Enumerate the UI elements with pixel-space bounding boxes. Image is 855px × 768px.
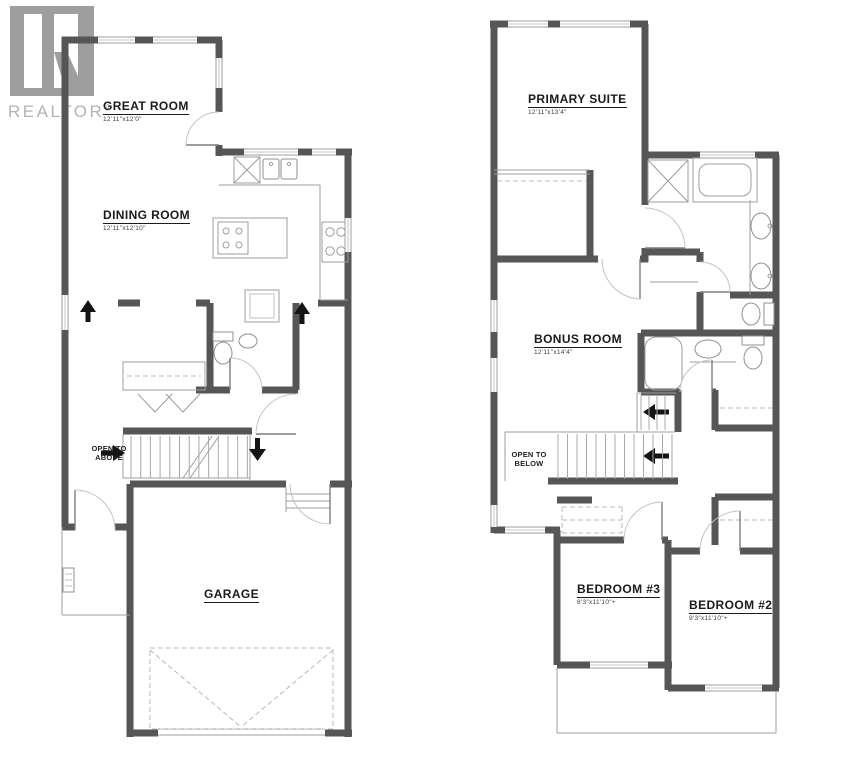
burner-icon xyxy=(223,228,229,234)
floorplan-page: REALTOR® xyxy=(0,0,855,768)
burner-icon xyxy=(337,247,345,255)
tub-surround xyxy=(693,158,757,202)
open-to-below-label: OPEN TO BELOW xyxy=(504,450,554,468)
burner-icon xyxy=(223,242,229,248)
dining-room-label: DINING ROOM 12'11"x12'10" xyxy=(103,206,190,232)
toilet-tank xyxy=(213,332,233,341)
bedroom-2-label: BEDROOM #2 9'3"x11'10"+ xyxy=(689,596,772,622)
upper-floor-plan xyxy=(490,24,779,733)
burner-icon xyxy=(337,228,345,236)
burner-icon xyxy=(236,228,242,234)
main-floor-plan xyxy=(62,37,352,737)
burner-icon xyxy=(236,242,242,248)
ensuite-tub xyxy=(699,164,751,196)
stove xyxy=(322,222,348,262)
burner-icon xyxy=(326,247,334,255)
ensuite-fixtures xyxy=(648,158,774,325)
powder-sink xyxy=(239,334,257,348)
bath-tub xyxy=(645,337,682,390)
cooktop xyxy=(218,222,248,254)
entry-arrow-icons xyxy=(80,300,310,461)
primary-suite-label: PRIMARY SUITE 12'11"x13'4" xyxy=(528,90,627,116)
toilet-tank xyxy=(764,303,774,325)
great-room-label: GREAT ROOM 12'11"x12'0" xyxy=(103,97,189,123)
bedroom-3-label: BEDROOM #3 8'3"x11'10"+ xyxy=(577,580,660,606)
bonus-room-label: BONUS ROOM 12'11"x14'4" xyxy=(534,330,622,356)
garage-door-swing-dashed xyxy=(150,648,333,729)
main-bath-fixtures xyxy=(645,336,764,390)
garage-label: GARAGE xyxy=(204,585,259,603)
kitchen-island xyxy=(213,218,287,258)
kitchen-fixtures xyxy=(213,157,348,322)
refrigerator-inner xyxy=(250,294,274,318)
burner-icon xyxy=(326,228,334,236)
toilet-bowl xyxy=(744,347,762,369)
powder-room-fixtures xyxy=(213,332,257,364)
bath-sink xyxy=(695,340,721,358)
toilet-bowl xyxy=(742,303,760,325)
main-floor-walls xyxy=(62,37,352,737)
shower-x xyxy=(648,160,688,202)
coat-hooks xyxy=(138,394,200,412)
dishwasher-x xyxy=(234,157,260,183)
stair-treads xyxy=(131,395,672,479)
open-to-above-label: OPEN TO ABOVE xyxy=(84,444,134,462)
toilet-tank xyxy=(742,336,764,345)
